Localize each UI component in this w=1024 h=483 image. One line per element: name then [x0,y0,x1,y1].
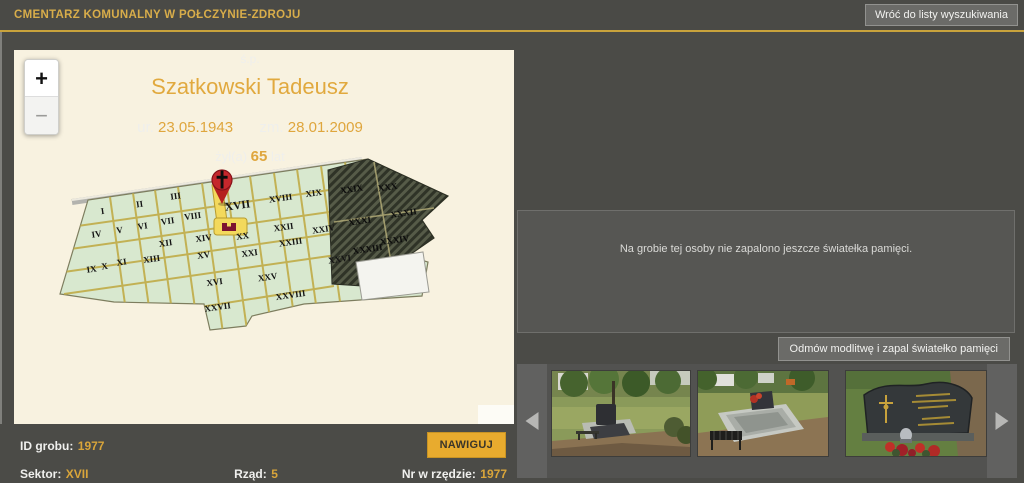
born-date: 23.05.1943 [158,119,233,136]
lived-years-value: 65 [251,148,268,165]
number-in-row-value: 1977 [480,467,507,481]
died-label: zm. [259,119,283,136]
page-title: CMENTARZ KOMUNALNY W POŁCZYNIE-ZDROJU [14,0,301,30]
grave-photo-thumbnail-1[interactable] [552,371,690,456]
lived-label: żył(a) [215,149,247,164]
map-sector-label-VII: VII [160,215,175,227]
grave-row: Rząd: 5 [234,465,278,483]
memorial-candles-box: Na grobie tej osoby nie zapalono jeszcze… [517,210,1015,333]
cemetery-map[interactable]: IIIIIIXVIIXVIIIXIXXXIXXXXIVVVIVIIVIIIXXI… [14,50,514,424]
gallery-next-button[interactable] [987,364,1017,478]
row-label: Rząd: [234,467,267,481]
grave-id-value: 1977 [78,439,105,453]
pray-and-light-candle-button[interactable]: Odmów modlitwę i zapal światełko pamięci [778,337,1010,361]
map-sector-label-XX: XX [235,230,250,242]
sector-label: Sektor: [20,467,61,481]
sector-value: XVII [66,467,89,481]
map-sector-label-IV: IV [91,228,103,239]
number-in-row-label: Nr w rzędzie: [402,467,476,481]
grave-id-label: ID grobu: [20,439,73,453]
grave-id: ID grobu: 1977 [20,437,104,455]
lived-suffix: lat [271,149,285,164]
map-sector-label-XI: XI [116,256,128,267]
row-value: 5 [271,467,278,481]
back-to-search-button[interactable]: Wróć do listy wyszukiwania [865,4,1018,26]
map-sector-label-IX: IX [86,263,98,274]
birth-death-dates: ur. 23.05.1943 zm. 28.01.2009 [0,119,500,136]
map-sector-label-III: III [170,190,182,201]
grave-info-bar: ID grobu: 1977 NAWIGUJ Sektor: XVII Rząd… [0,424,514,480]
born-label: ur. [137,119,154,136]
gallery-prev-button[interactable] [517,364,547,478]
grave-photo-thumbnail-2[interactable] [698,371,828,456]
left-edge-divider [0,0,2,480]
grave-sector: Sektor: XVII [20,465,88,483]
died-date: 28.01.2009 [288,119,363,136]
header-bar: CMENTARZ KOMUNALNY W POŁCZYNIE-ZDROJU Wr… [0,0,1024,32]
grave-photo-thumbnail-3[interactable] [846,371,986,456]
map-sector-label-XII: XII [158,237,173,249]
cemetery-map-panel[interactable]: IIIIIIXVIIXVIIIXIXXXIXXXXIVVVIVIIVIIIXXI… [14,50,514,424]
no-candles-message: Na grobie tej osoby nie zapalono jeszcze… [518,243,1014,255]
left-arrow-icon [526,412,539,430]
right-arrow-icon [996,412,1009,430]
grave-number-in-row: Nr w rzędzie: 1977 [402,465,507,483]
deceased-name: Szatkowski Tadeusz [0,74,500,100]
map-sector-label-VI: VI [137,220,149,231]
map-sector-label-XV: XV [196,249,211,261]
photo-gallery [517,364,1017,478]
honorific: ś.p. [0,52,500,66]
lived-years: żył(a) 65 lat [0,148,500,165]
map-attribution-box [478,405,514,424]
navigate-button[interactable]: NAWIGUJ [427,432,506,458]
